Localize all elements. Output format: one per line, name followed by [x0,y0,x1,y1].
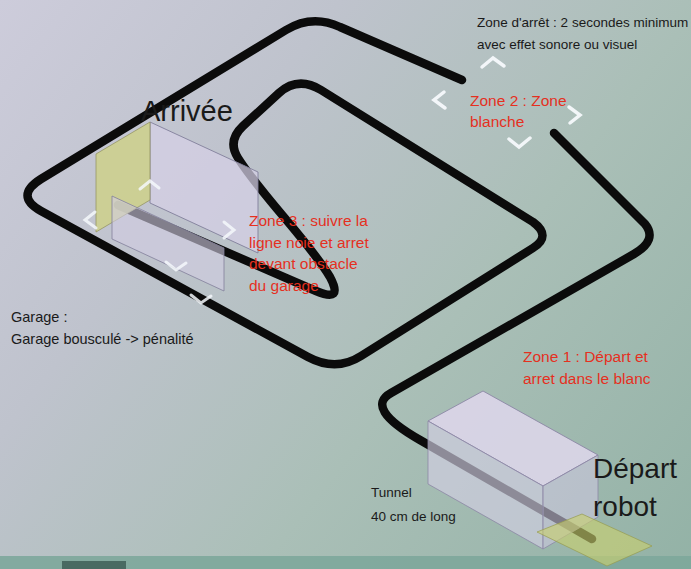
zone2-chevron-down-icon [509,138,530,147]
label-garage: Garage : Garage bousculé -> pénalité [11,306,194,350]
zone2-chevron-up-icon [482,58,504,67]
label-zone2: Zone 2 : Zone blanche [470,90,567,132]
label-arrivee: Arrivée [141,95,233,128]
bottom-edge-artifact [62,561,126,569]
label-tunnel: Tunnel 40 cm de long [371,481,456,529]
course-diagram-canvas: Zone d'arrêt : 2 secondes minimum avec e… [0,0,691,569]
label-zone-arret: Zone d'arrêt : 2 secondes minimum avec e… [477,12,688,56]
label-zone1: Zone 1 : Départ et arret dans le blanc [523,346,651,390]
zone2-chevron-left-icon [434,92,445,108]
label-depart-robot: Départ robot [593,450,677,526]
label-zone3: Zone 3 : suivre la ligne noie et arret d… [249,210,369,296]
garage-corner-marker-icon [85,212,96,228]
zone2-chevron-right-icon [569,107,580,123]
